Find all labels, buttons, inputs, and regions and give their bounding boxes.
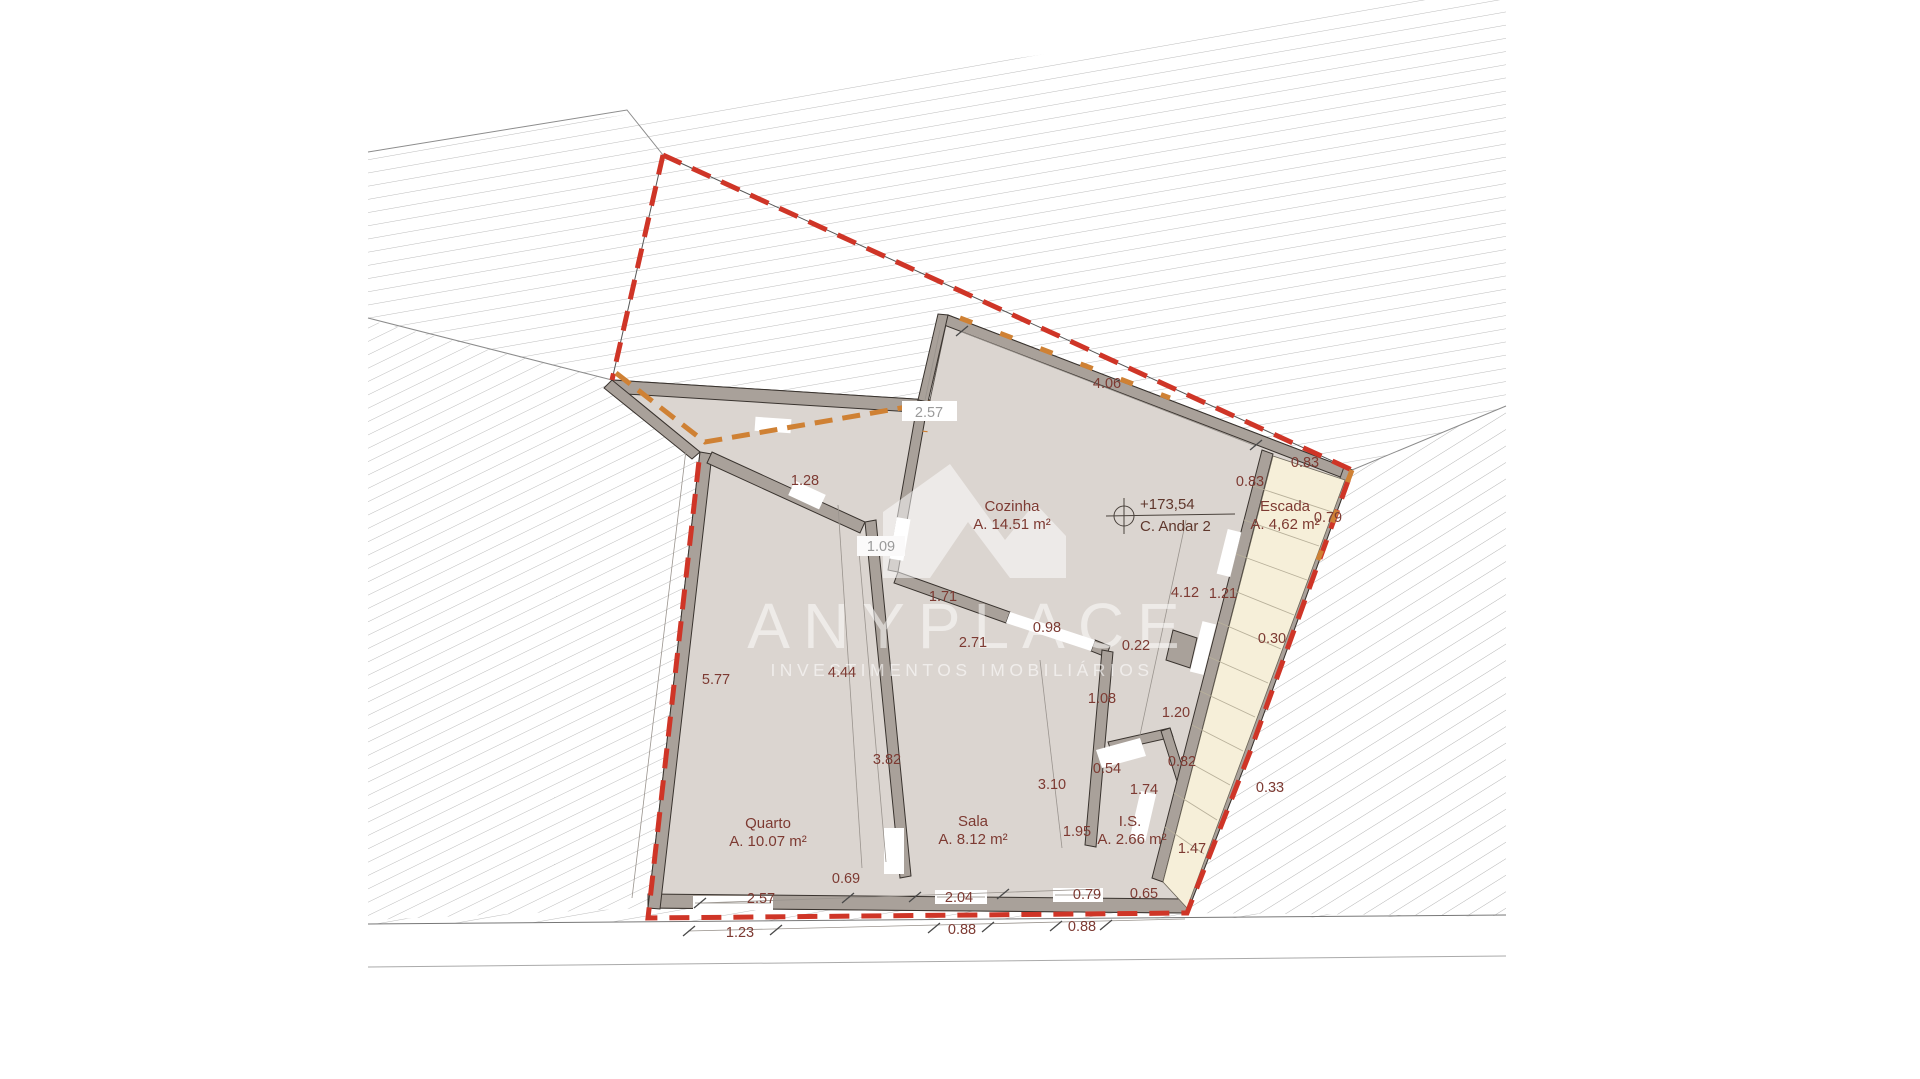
dimension-label: 5.77	[702, 672, 730, 688]
dimension-label: 0.83	[1236, 474, 1264, 490]
room-label-quarto: Quarto	[745, 815, 791, 832]
dimension-label: 1.09	[867, 539, 895, 555]
dimension-label: 0.65	[1130, 886, 1158, 902]
dimension-label: 0.83	[1291, 455, 1319, 471]
dimension-label: 0.69	[832, 871, 860, 887]
room-area-sala: A. 8.12 m²	[938, 831, 1007, 848]
dimension-label: 1.28	[791, 473, 819, 489]
dimension-label: 2.04	[945, 890, 973, 906]
dimension-label: 1.74	[1130, 782, 1158, 798]
dimension-label: 1.95	[1063, 824, 1091, 840]
dimension-label: 0.79	[1073, 887, 1101, 903]
room-area-quarto: A. 10.07 m²	[729, 833, 807, 850]
dimension-label: 1.23	[726, 925, 754, 941]
level-floor: C. Andar 2	[1140, 518, 1211, 535]
room-area-cozinha: A. 14.51 m²	[973, 516, 1051, 533]
dimension-label: 0.30	[1258, 631, 1286, 647]
dimension-label: 0.22	[1122, 638, 1150, 654]
dimension-label: 4.12	[1171, 585, 1199, 601]
dimension-label: 1.71	[929, 589, 957, 605]
dimension-label: 2.71	[959, 635, 987, 651]
dimension-label: 0.88	[948, 922, 976, 938]
room-label-sala: Sala	[958, 813, 989, 830]
dimension-label: 0.33	[1256, 780, 1284, 796]
dimension-label: 0.54	[1093, 761, 1121, 777]
dimension-label: 1.47	[1178, 841, 1206, 857]
dimension-label: 1.21	[1209, 586, 1237, 602]
dimension-label: 1.08	[1088, 691, 1116, 707]
dimension-label: 2.57	[747, 891, 775, 907]
room-label-cozinha: Cozinha	[984, 498, 1040, 515]
floor-plan-canvas: ANYPLACE INVESTIMENTOS IMOBILIÁRIOS 4.06…	[0, 0, 1920, 1079]
dimension-label: 3.82	[873, 752, 901, 768]
room-area-escada: A. 4,62 m²	[1250, 516, 1319, 533]
dimension-label: 1.20	[1162, 705, 1190, 721]
dimension-label: 3.10	[1038, 777, 1066, 793]
dimension-label: 4.06	[1093, 376, 1121, 392]
door-opening-bedroom	[884, 828, 904, 874]
dimension-label: 0.98	[1033, 620, 1061, 636]
level-elevation: +173,54	[1140, 496, 1195, 513]
room-label-is: I.S.	[1119, 813, 1142, 830]
dimension-label: 0.88	[1068, 919, 1096, 935]
dimension-label: 2.57	[915, 405, 943, 421]
room-label-escada: Escada	[1260, 498, 1311, 515]
dimension-label: 0.82	[1168, 754, 1196, 770]
dimension-label: 4.44	[828, 665, 856, 681]
room-area-is: A. 2.66 m²	[1097, 831, 1166, 848]
